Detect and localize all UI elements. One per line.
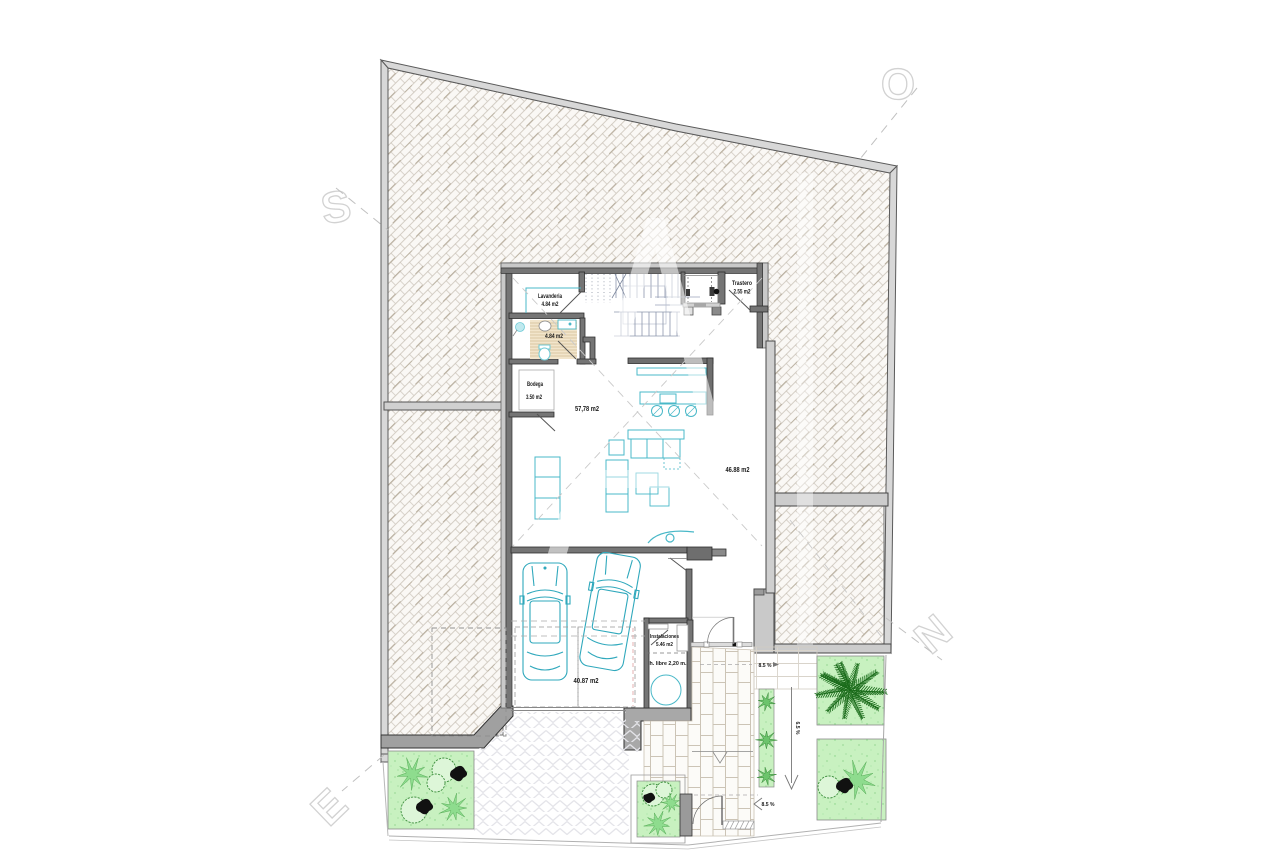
svg-text:8.5 %: 8.5 %	[762, 802, 775, 808]
svg-text:40.87 m2: 40.87 m2	[574, 676, 599, 685]
svg-text:Trastero: Trastero	[732, 280, 752, 287]
svg-text:8.5 %: 8.5 %	[759, 663, 772, 669]
svg-text:Lavanderia: Lavanderia	[538, 293, 562, 300]
svg-text:5.46 m2: 5.46 m2	[656, 642, 673, 648]
svg-text:6.5 %: 6.5 %	[794, 722, 800, 735]
svg-text:4.84 m2: 4.84 m2	[545, 333, 563, 340]
svg-text:57,78 m2: 57,78 m2	[575, 404, 599, 413]
svg-text:4.84 m2: 4.84 m2	[542, 301, 559, 308]
svg-text:Bodega: Bodega	[527, 381, 543, 388]
svg-text:Instalaciones: Instalaciones	[650, 634, 679, 640]
svg-text:h. libre 2,20 m.: h. libre 2,20 m.	[650, 661, 687, 667]
svg-text:O: O	[881, 60, 915, 109]
svg-text:3.50 m2: 3.50 m2	[526, 394, 542, 401]
svg-text:2.55 m2: 2.55 m2	[734, 289, 751, 296]
svg-text:46.88 m2: 46.88 m2	[726, 465, 750, 474]
